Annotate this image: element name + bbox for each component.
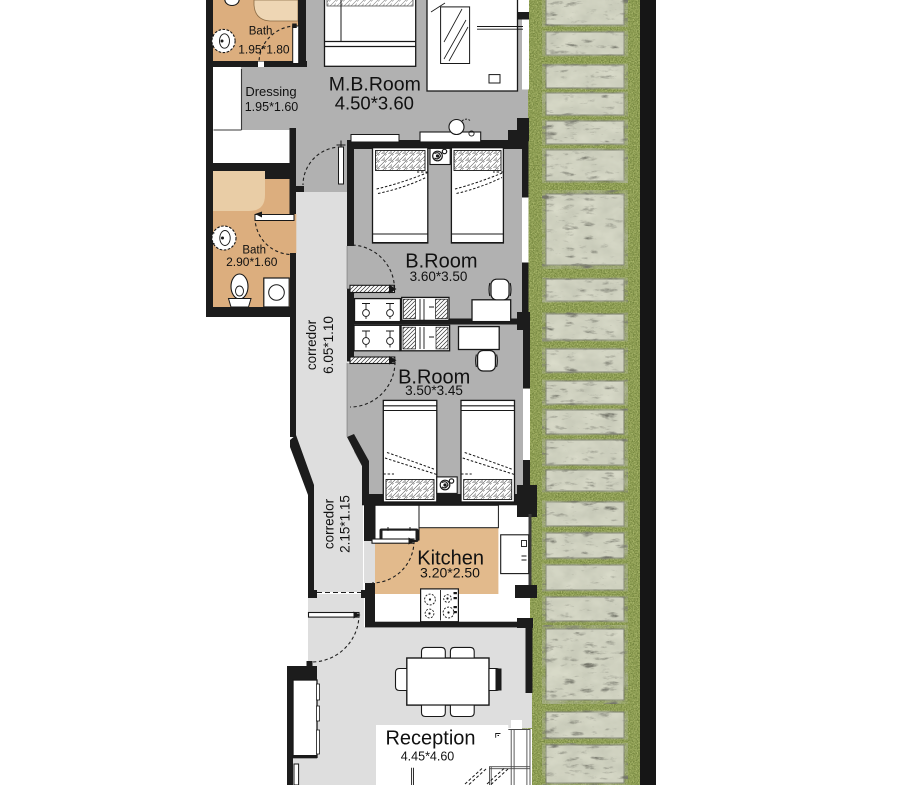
svg-text:corredor: corredor	[322, 498, 337, 549]
svg-text:4.50*3.60: 4.50*3.60	[335, 93, 414, 114]
svg-text:1.95*1.80: 1.95*1.80	[238, 43, 290, 57]
svg-text:4.45*4.60: 4.45*4.60	[401, 750, 455, 764]
svg-text:3.60*3.50: 3.60*3.50	[410, 269, 468, 284]
svg-text:6.05*1.10: 6.05*1.10	[321, 316, 336, 374]
svg-text:3.50*3.45: 3.50*3.45	[405, 383, 463, 398]
svg-text:3.20*2.50: 3.20*2.50	[420, 565, 480, 581]
svg-text:2.90*1.60: 2.90*1.60	[226, 255, 278, 269]
svg-text:corredor: corredor	[304, 319, 319, 370]
svg-text:Bath: Bath	[249, 26, 273, 38]
svg-text:1.95*1.60: 1.95*1.60	[245, 100, 299, 114]
svg-text:2.15*1.15: 2.15*1.15	[338, 495, 353, 553]
svg-text:Dressing: Dressing	[245, 84, 296, 99]
svg-text:Reception: Reception	[385, 728, 475, 750]
